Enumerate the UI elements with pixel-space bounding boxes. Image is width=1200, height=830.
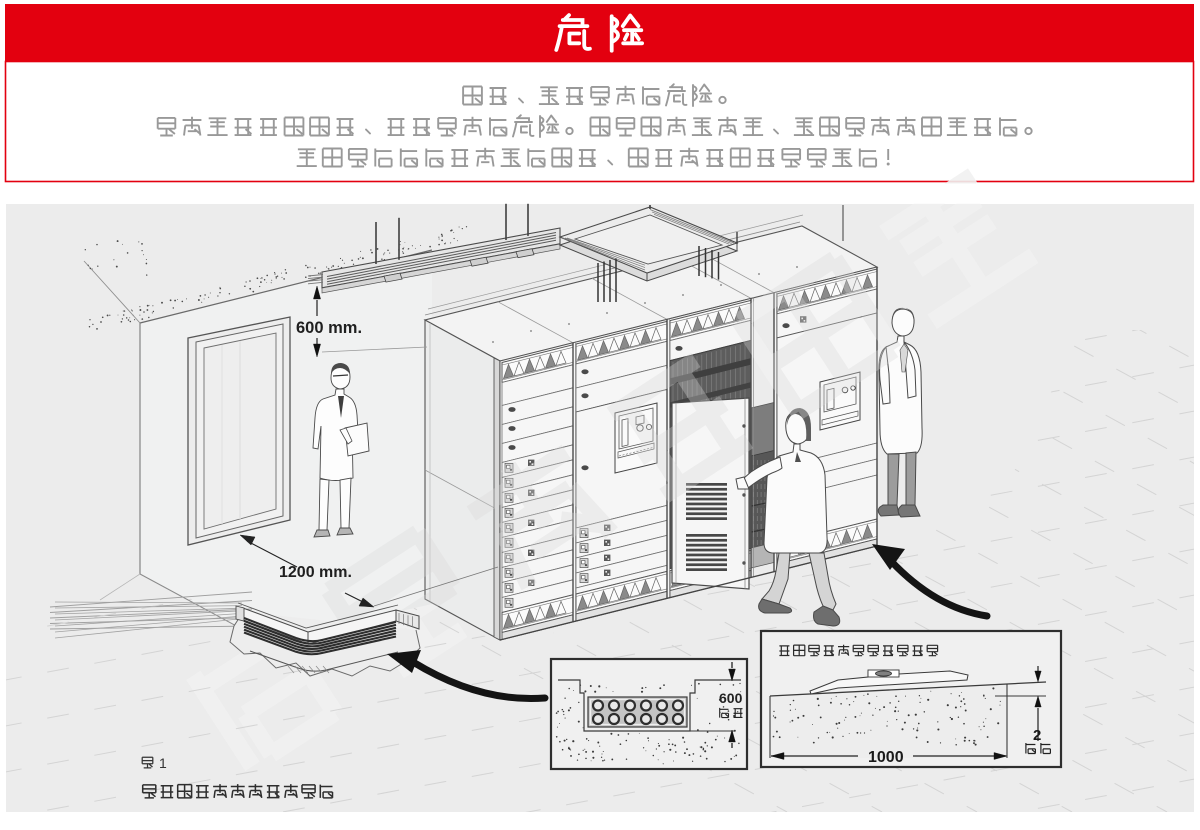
svg-text:1: 1 <box>159 755 167 771</box>
svg-text:1200 mm.: 1200 mm. <box>279 564 352 581</box>
svg-text:2: 2 <box>1033 727 1041 744</box>
svg-text:600: 600 <box>719 690 743 706</box>
svg-text:600 mm.: 600 mm. <box>296 319 362 337</box>
svg-text:1000: 1000 <box>868 749 904 766</box>
